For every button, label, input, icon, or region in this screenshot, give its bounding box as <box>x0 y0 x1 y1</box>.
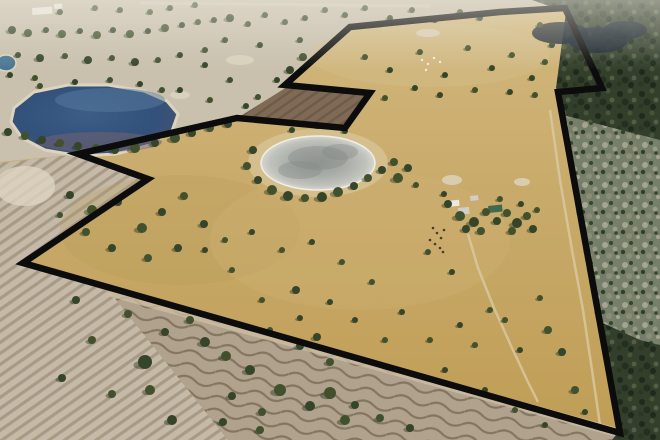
tree <box>74 142 82 150</box>
tree <box>7 72 13 78</box>
livestock-dot <box>434 243 437 246</box>
tree <box>313 333 321 341</box>
livestock-dot <box>443 229 446 232</box>
tree <box>333 187 343 197</box>
sand-patch <box>442 175 462 185</box>
tree <box>469 217 479 227</box>
tree <box>512 407 518 413</box>
tree <box>108 244 116 252</box>
tree <box>326 358 334 366</box>
tree <box>442 367 448 373</box>
tree <box>254 176 262 184</box>
tree <box>4 128 12 136</box>
tree <box>529 75 535 81</box>
tree <box>437 92 443 98</box>
tree <box>279 247 285 253</box>
tree <box>177 87 183 93</box>
tree <box>161 328 169 336</box>
tree <box>219 418 227 426</box>
tree <box>207 97 213 103</box>
tree <box>350 182 358 190</box>
tree <box>351 401 359 409</box>
tree <box>582 409 588 415</box>
tree <box>317 192 327 202</box>
tree <box>412 85 418 91</box>
livestock-dot <box>432 227 435 230</box>
clay-pan-mottle <box>278 161 322 179</box>
tree <box>529 225 537 233</box>
tree <box>137 81 143 87</box>
clay-pan-mottle <box>322 144 358 160</box>
livestock-dot <box>429 239 432 242</box>
tree <box>518 201 524 207</box>
shed-roof <box>470 195 478 201</box>
tree <box>487 307 493 313</box>
tree <box>292 286 300 294</box>
tree <box>108 390 116 398</box>
tree <box>274 77 280 83</box>
tree <box>167 415 177 425</box>
lake-highlight <box>55 88 165 112</box>
tree <box>245 365 255 375</box>
tree <box>243 103 249 109</box>
tree <box>390 158 398 166</box>
atmospheric-haze <box>0 0 660 70</box>
tree <box>289 127 295 133</box>
tree <box>259 297 265 303</box>
tree <box>517 347 523 353</box>
tree <box>472 87 478 93</box>
tree <box>255 94 261 100</box>
tree <box>542 422 548 428</box>
tree <box>369 279 375 285</box>
tree <box>455 211 465 221</box>
livestock-dot <box>442 251 445 254</box>
tree <box>145 385 155 395</box>
tree <box>301 194 309 202</box>
tree <box>462 225 470 233</box>
tree <box>305 401 315 411</box>
tree <box>404 164 412 172</box>
tree <box>297 315 303 321</box>
tree <box>258 408 266 416</box>
tree <box>324 387 336 399</box>
tree <box>137 223 147 233</box>
tree <box>58 374 66 382</box>
tree <box>382 337 388 343</box>
aerial-photo-frame <box>0 0 660 440</box>
tree <box>352 317 358 323</box>
tree <box>227 77 233 83</box>
tree <box>534 207 540 213</box>
tree <box>340 415 350 425</box>
tree <box>442 72 448 78</box>
tree <box>503 209 511 217</box>
tree <box>256 426 264 434</box>
tree <box>72 79 78 85</box>
tree <box>482 208 490 216</box>
tree <box>124 310 132 318</box>
tree <box>532 92 538 98</box>
tree <box>477 227 485 235</box>
tree <box>497 196 503 202</box>
tree <box>159 87 165 93</box>
tree <box>38 136 46 144</box>
tree <box>221 351 231 361</box>
tree <box>457 322 463 328</box>
tree <box>107 77 113 83</box>
tree <box>283 191 293 201</box>
tree <box>274 384 286 396</box>
livestock-dot <box>439 247 442 250</box>
tree <box>82 228 90 236</box>
tree <box>376 414 384 422</box>
tree <box>202 247 208 253</box>
tree <box>229 267 235 273</box>
tree <box>502 317 508 323</box>
tree <box>493 217 501 225</box>
tree <box>441 191 447 197</box>
tree <box>413 182 419 188</box>
tree <box>249 229 255 235</box>
sand-patch <box>514 178 530 186</box>
tree <box>512 218 522 228</box>
tree <box>399 309 405 315</box>
tree <box>228 392 236 400</box>
livestock-dot <box>440 237 443 240</box>
tree <box>472 342 478 348</box>
tree <box>66 191 74 199</box>
tree <box>571 386 579 394</box>
tree <box>32 75 38 81</box>
tree <box>243 162 251 170</box>
livestock-dot <box>436 232 439 235</box>
tree <box>222 237 228 243</box>
tree <box>378 166 386 174</box>
tree <box>200 220 208 228</box>
tree <box>56 139 64 147</box>
tree <box>425 249 431 255</box>
tree <box>267 185 277 195</box>
tree <box>21 132 29 140</box>
shed-roof <box>488 205 503 213</box>
tree <box>339 259 345 265</box>
tree <box>444 200 452 208</box>
tree <box>138 355 152 369</box>
tree <box>309 239 315 245</box>
tree <box>327 299 333 305</box>
aerial-photo <box>0 0 660 440</box>
tree <box>144 254 152 262</box>
tree <box>449 269 455 275</box>
tree <box>72 296 80 304</box>
tree <box>382 95 388 101</box>
grass-tone-patch <box>210 170 510 310</box>
tree <box>427 337 433 343</box>
tree <box>37 83 43 89</box>
tree <box>88 336 96 344</box>
tree <box>507 89 513 95</box>
tree <box>544 326 552 334</box>
tree <box>393 173 403 183</box>
tree <box>406 424 414 432</box>
tree <box>537 295 543 301</box>
tree <box>200 337 210 347</box>
tree <box>508 227 516 235</box>
tree <box>523 212 531 220</box>
tree <box>158 208 166 216</box>
tree <box>364 174 372 182</box>
tree <box>558 348 566 356</box>
tree <box>57 212 63 218</box>
tree <box>186 316 194 324</box>
tree <box>249 146 257 154</box>
tree <box>180 192 188 200</box>
tree <box>174 244 182 252</box>
